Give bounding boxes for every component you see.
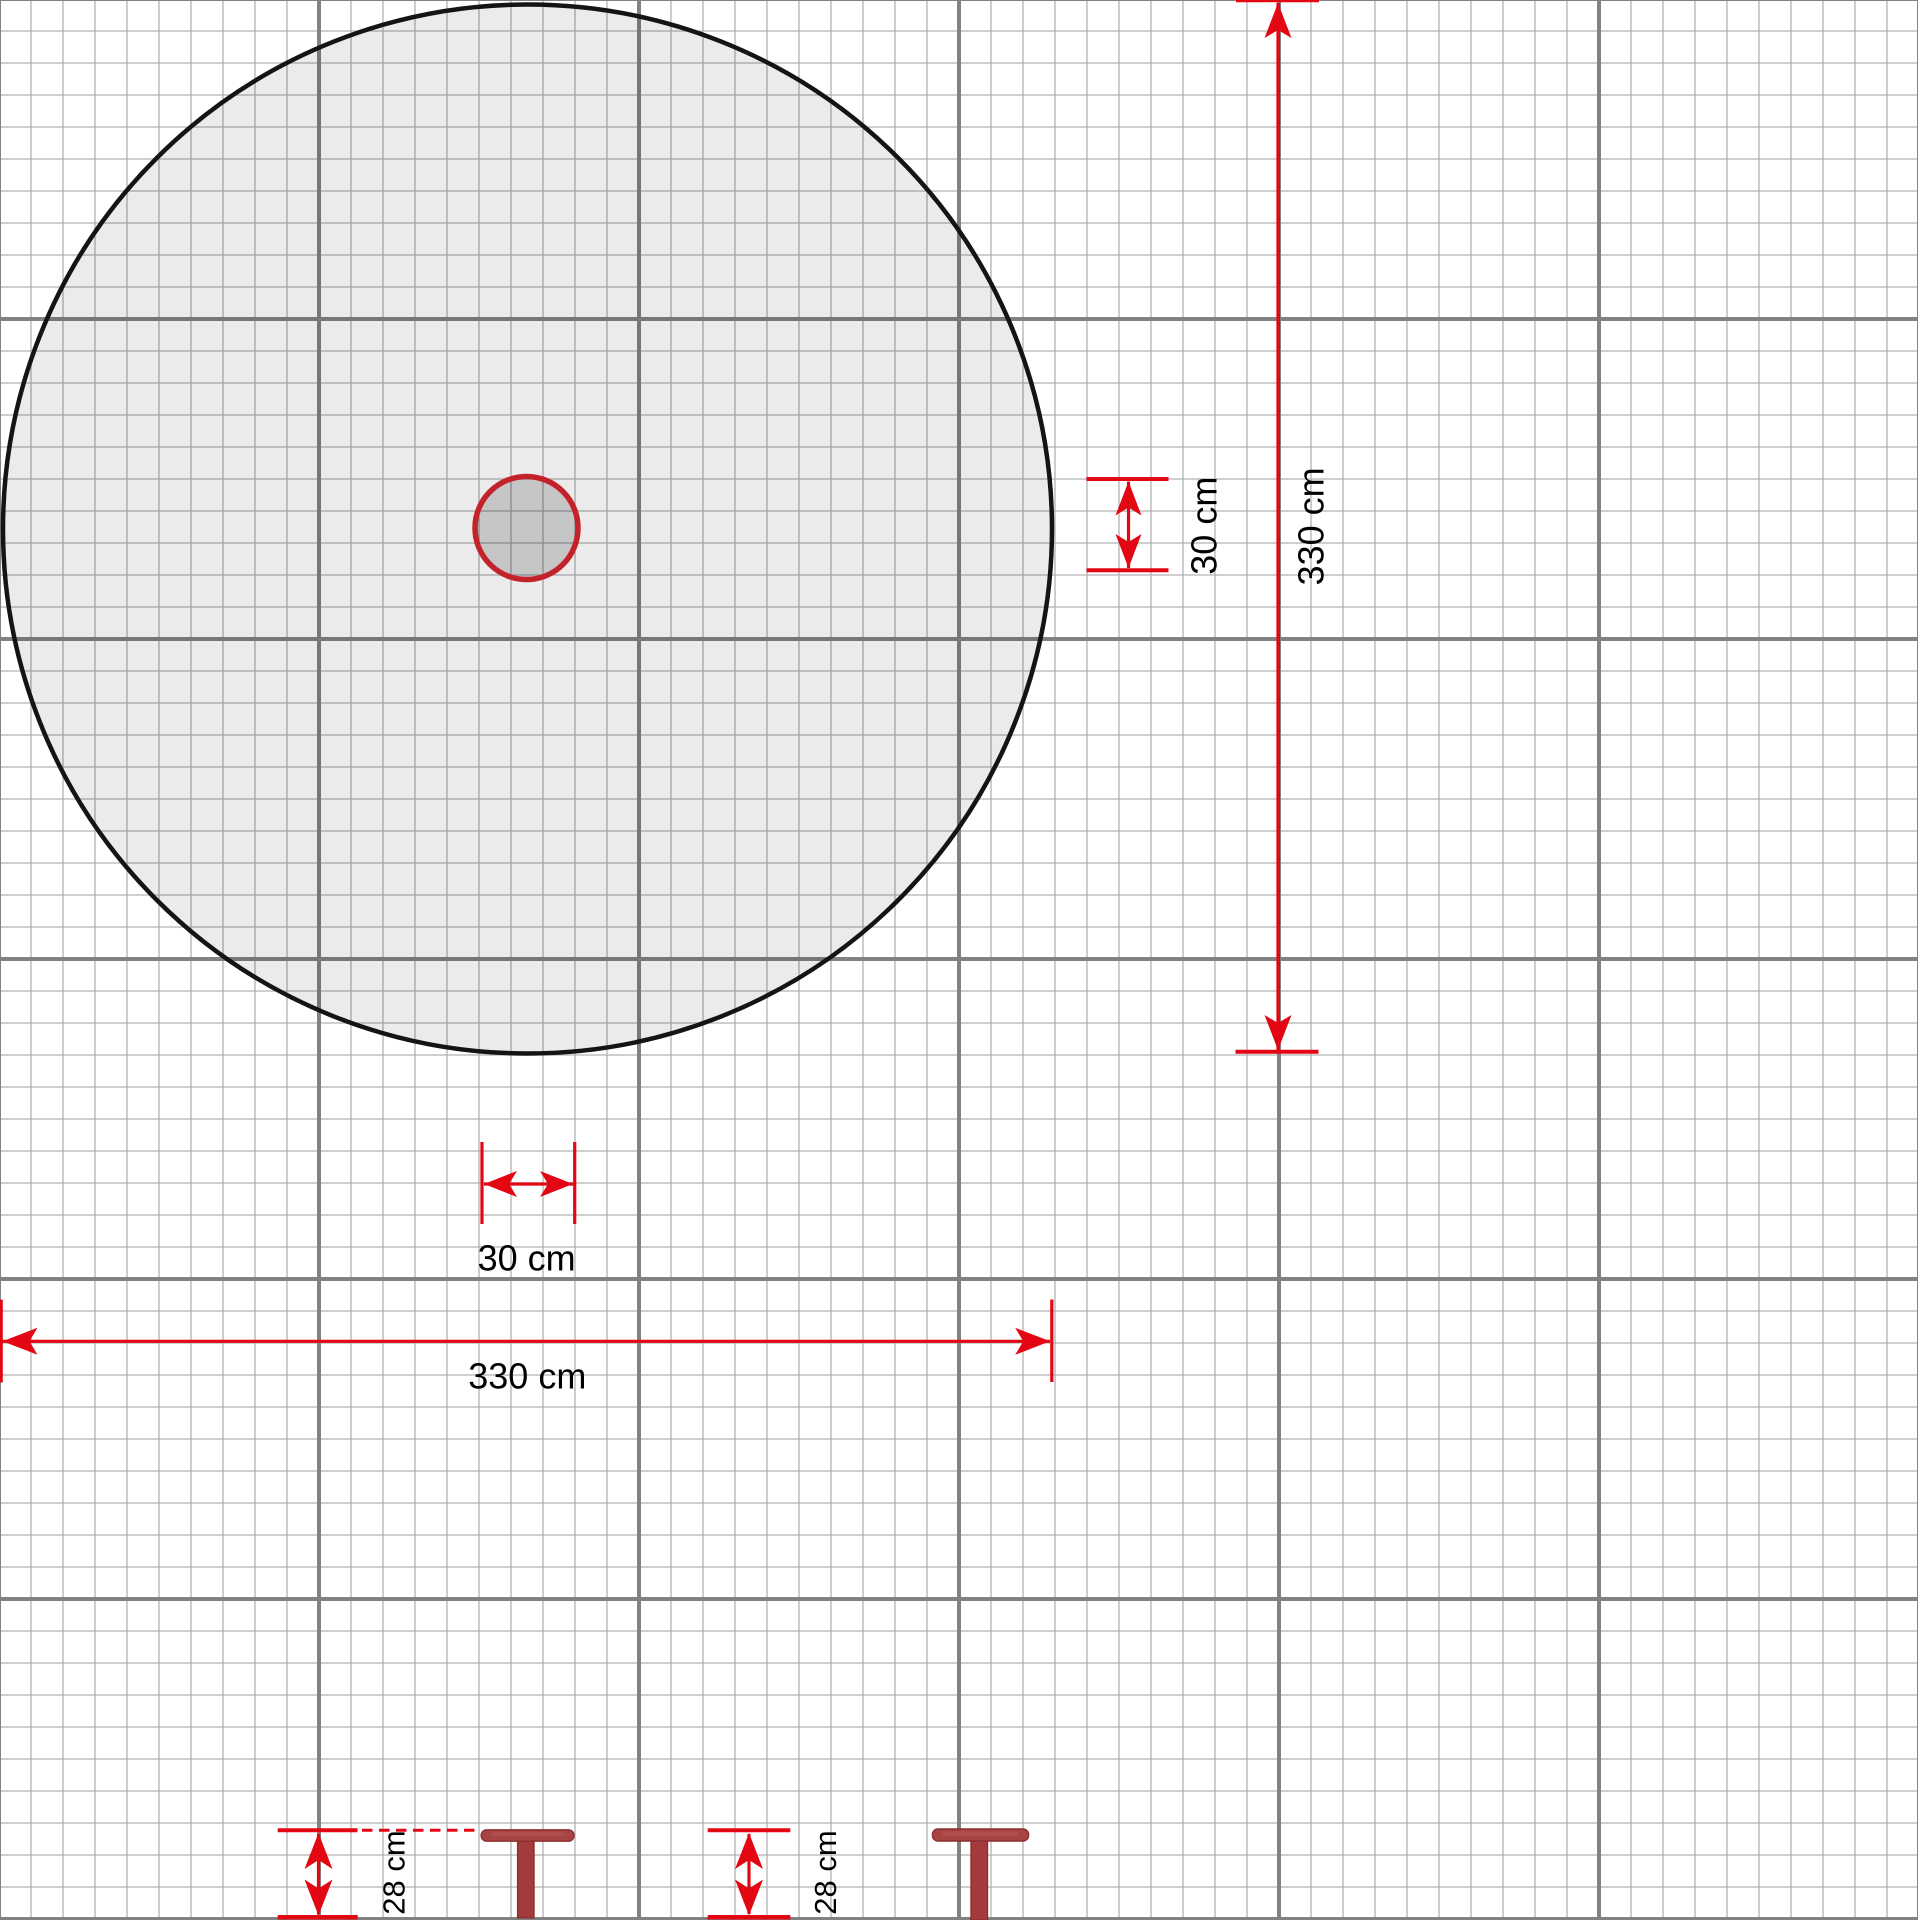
svg-text:30 cm: 30 cm	[478, 1238, 576, 1279]
svg-text:30 cm: 30 cm	[1184, 477, 1225, 575]
svg-text:330 cm: 330 cm	[468, 1355, 586, 1396]
svg-text:28 cm: 28 cm	[808, 1830, 843, 1914]
svg-text:330 cm: 330 cm	[1291, 467, 1332, 585]
svg-text:28 cm: 28 cm	[377, 1830, 412, 1914]
